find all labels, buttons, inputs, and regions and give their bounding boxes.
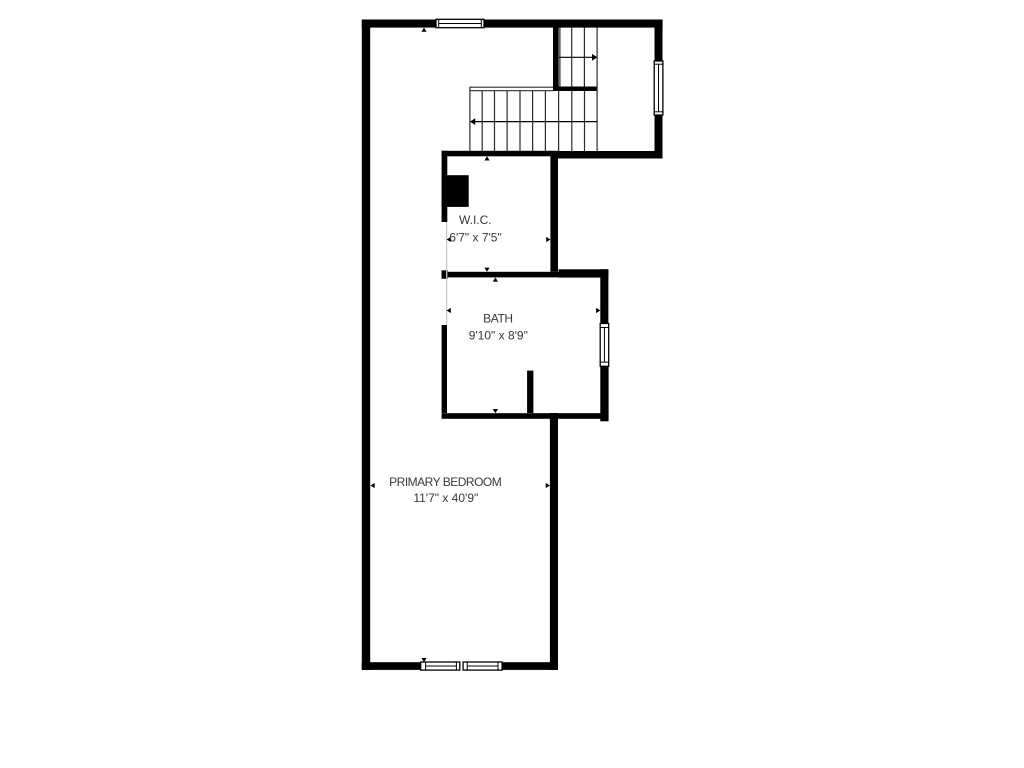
svg-text:6'7" x 7'5": 6'7" x 7'5" [449, 230, 501, 244]
svg-text:9'10" x 8'9": 9'10" x 8'9" [469, 329, 528, 343]
svg-text:PRIMARY BEDROOM: PRIMARY BEDROOM [389, 475, 502, 489]
svg-text:W.I.C.: W.I.C. [459, 213, 492, 227]
svg-text:BATH: BATH [483, 312, 513, 326]
svg-text:11'7" x 40'9": 11'7" x 40'9" [413, 491, 478, 505]
